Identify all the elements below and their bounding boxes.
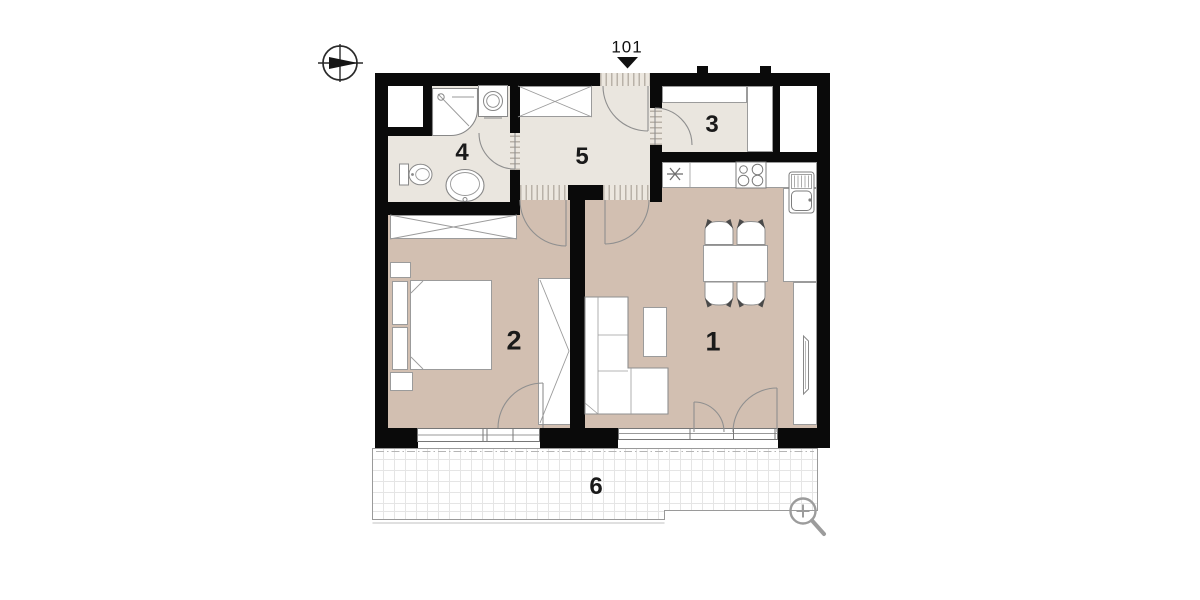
room-label-3: 3 [705,113,718,137]
window-mullions [418,429,777,442]
floor-plan: 101 1 2 3 4 5 6 [0,0,1200,600]
stove [736,162,766,188]
room-label-4: 4 [455,141,468,165]
chair [737,282,765,308]
living-door-arc [605,200,649,244]
chair [737,219,765,245]
bathroom-sink [446,170,484,202]
mattress-fold-marks [411,281,423,369]
bedroom-window-leaf-arc [498,383,543,428]
unit-number-label: 101 [611,39,642,56]
entrance-triangle-marker [617,57,638,69]
asterisk-appliance-icon [667,168,683,180]
dining-chairs [705,219,765,308]
zoom-in-icon[interactable] [791,499,825,535]
toilet [400,164,433,185]
room-label-2: 2 [506,328,521,355]
compass-icon [318,44,363,82]
room-label-6: 6 [589,475,602,499]
chair [705,219,733,245]
bathroom-door-arc [479,133,515,169]
sofa [585,297,668,414]
room-label-5: 5 [575,145,588,169]
wardrobe-diagonals [390,86,592,423]
plan-detail-overlay [0,0,1200,600]
balcony-door-right-arc [733,388,777,432]
shower [433,89,478,136]
room-label-1: 1 [705,329,720,356]
balcony-door-left-arc [694,402,724,432]
kitchen-sink [789,172,814,213]
storage-door-arc [655,108,692,145]
bedroom-door-arc [520,200,566,246]
chair [705,282,733,308]
tv [804,336,809,394]
entry-door-arc [603,86,648,131]
washing-machine [479,86,508,119]
